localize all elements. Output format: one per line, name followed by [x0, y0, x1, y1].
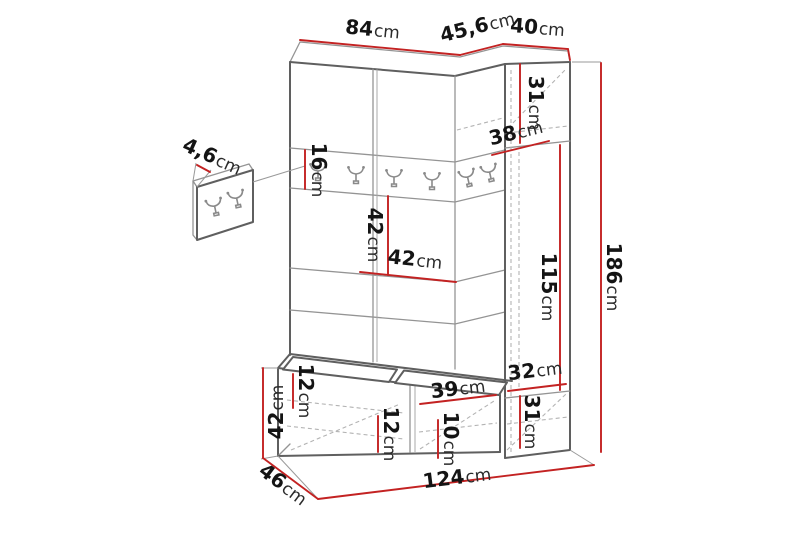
coat-hook-icon — [385, 169, 403, 187]
coat-hook-icon — [479, 162, 500, 183]
coat-hook-icon — [457, 167, 478, 188]
dim-label-10cm: 10cm — [439, 412, 463, 467]
dim-label-42cm-vertical: 42cm — [363, 208, 387, 263]
dim-label-45-6cm: 45,6cm — [437, 5, 517, 47]
dim-line-42-horizontal — [360, 272, 456, 282]
hook-panel-front-face — [197, 170, 253, 240]
dim-label-12cm-left: 12cm — [379, 407, 403, 462]
coat-hook-icon — [347, 166, 365, 184]
dim-label-84cm: 84cm — [344, 15, 401, 44]
dim-label-40cm: 40cm — [509, 13, 565, 41]
dim-line-32 — [508, 384, 566, 391]
hook-panel-pointer-line — [253, 166, 305, 182]
dim-label-124cm: 124cm — [421, 461, 492, 493]
dim-line-84 — [300, 40, 460, 55]
floor-line-right — [570, 450, 594, 465]
dim-label-31cm-base: 31cm — [520, 395, 544, 450]
dim-label-186cm: 186cm — [602, 243, 626, 312]
dim-label-42cm-horizontal: 42cm — [387, 244, 444, 274]
furniture-dimension-diagram: 84cm 45,6cm 40cm 31cm 38cm 16cm 4,6cm 42… — [0, 0, 800, 533]
dim-label-42cm-bench: 42cm — [264, 385, 288, 440]
dim-label-16cm: 16cm — [307, 143, 331, 198]
cabinet-bottom-edge — [505, 450, 570, 458]
dim-line-45-6 — [460, 44, 503, 55]
dim-label-32cm: 32cm — [506, 355, 563, 385]
coat-rack — [309, 162, 500, 189]
dimension-labels: 84cm 45,6cm 40cm 31cm 38cm 16cm 4,6cm 42… — [179, 5, 626, 510]
bench-left-bottom-edge — [278, 444, 290, 456]
dim-label-4-6cm: 4,6cm — [179, 132, 246, 179]
dim-label-12cm-top: 12cm — [294, 364, 318, 419]
dim-label-115cm: 115cm — [537, 253, 561, 322]
lower-shelf-line — [290, 310, 505, 324]
coat-hook-icon — [423, 172, 441, 190]
diagram-canvas: 84cm 45,6cm 40cm 31cm 38cm 16cm 4,6cm 42… — [0, 0, 800, 533]
wall-hook-panel — [193, 163, 305, 240]
wardrobe-front-top-edge — [290, 62, 570, 76]
